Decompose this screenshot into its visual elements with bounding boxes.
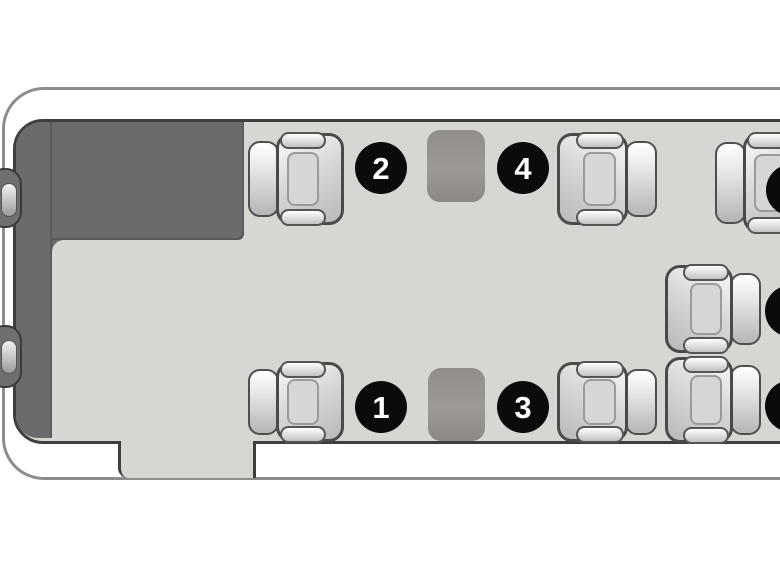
cockpit-seat-pad bbox=[1, 340, 17, 374]
seat-badge-4: 4 bbox=[497, 142, 549, 194]
seat-armrest-bottom bbox=[683, 427, 729, 444]
seat-armrest-top bbox=[683, 356, 729, 373]
seat-1[interactable] bbox=[248, 362, 344, 442]
seat-backrest bbox=[625, 141, 657, 216]
seat-right-mid[interactable] bbox=[665, 265, 761, 353]
seat-armrest-top bbox=[576, 361, 624, 378]
seat-3[interactable] bbox=[557, 362, 657, 442]
seat-cushion bbox=[690, 375, 722, 425]
seat-badge-1: 1 bbox=[355, 381, 407, 433]
table-forward bbox=[427, 130, 485, 202]
seat-map-canvas: 2413 bbox=[0, 0, 780, 574]
seat-backrest bbox=[730, 273, 761, 345]
seat-right-aft[interactable] bbox=[665, 357, 761, 443]
seat-armrest-top bbox=[683, 264, 729, 281]
seat-armrest-top bbox=[576, 132, 624, 149]
seat-cushion bbox=[287, 152, 319, 205]
seat-armrest-bottom bbox=[576, 209, 624, 226]
seat-armrest-bottom bbox=[280, 426, 326, 443]
seat-armrest-bottom bbox=[280, 209, 326, 226]
seat-badge-3: 3 bbox=[497, 381, 549, 433]
entry-door-well bbox=[118, 441, 256, 478]
seat-backrest bbox=[248, 141, 279, 216]
table-aft bbox=[428, 368, 485, 441]
seat-cushion bbox=[287, 379, 319, 425]
cockpit-seat-pad bbox=[1, 183, 17, 217]
seat-armrest-top bbox=[280, 132, 326, 149]
seat-4[interactable] bbox=[557, 133, 657, 225]
seat-backrest bbox=[625, 369, 657, 435]
seat-badge-2: 2 bbox=[355, 142, 407, 194]
seat-armrest-bottom bbox=[747, 217, 780, 234]
seat-cushion bbox=[583, 152, 616, 205]
seat-cushion bbox=[583, 379, 616, 425]
seat-backrest bbox=[730, 365, 761, 436]
cockpit-seat-bump-lower bbox=[0, 325, 22, 388]
seat-armrest-bottom bbox=[683, 337, 729, 354]
seat-2[interactable] bbox=[248, 133, 344, 225]
cockpit-seat-bump-upper bbox=[0, 168, 22, 228]
seat-armrest-top bbox=[280, 361, 326, 378]
seat-armrest-bottom bbox=[576, 426, 624, 443]
seat-cushion bbox=[690, 283, 722, 334]
seat-backrest bbox=[715, 142, 746, 224]
forward-bulkhead-column bbox=[16, 122, 52, 438]
seat-backrest bbox=[248, 369, 279, 435]
seat-armrest-top bbox=[747, 132, 780, 149]
